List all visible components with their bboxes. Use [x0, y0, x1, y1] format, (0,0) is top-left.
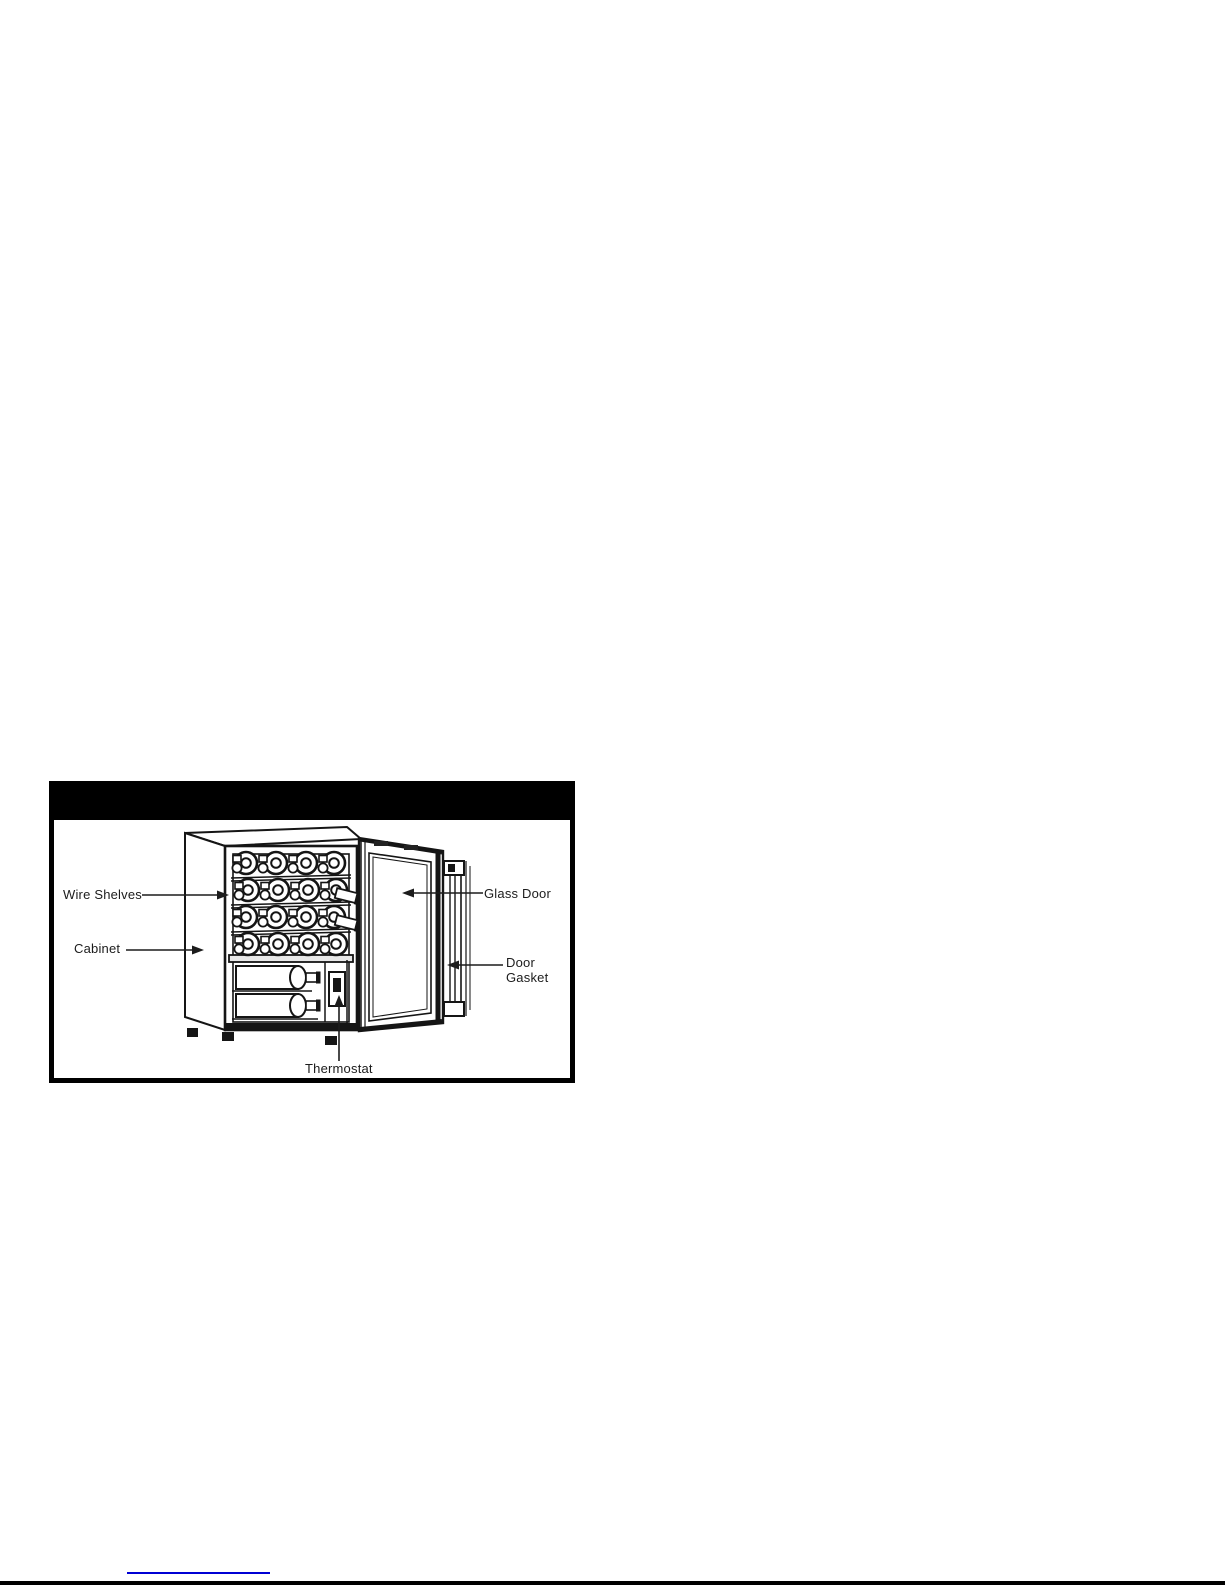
door-gasket-label-line1: Door [506, 955, 548, 970]
cabinet-arrow [126, 946, 204, 955]
thermostat-label: Thermostat [305, 1061, 373, 1076]
cabinet-label: Cabinet [74, 941, 120, 956]
cabinet-foot [187, 1028, 198, 1037]
door-gasket-label-line2: Gasket [506, 970, 548, 985]
glass-door [359, 838, 443, 1031]
cabinet-foot [325, 1036, 337, 1045]
wine-cooler-diagram [54, 820, 570, 1078]
door-gasket-label: Door Gasket [506, 955, 548, 985]
footer-link-underline[interactable] [127, 1572, 270, 1574]
door-gasket [444, 861, 470, 1016]
page-bottom-rule [0, 1581, 1225, 1585]
wire-shelves-label: Wire Shelves [63, 887, 142, 902]
cabinet-foot [222, 1032, 234, 1041]
glass-door-label: Glass Door [484, 886, 551, 901]
figure-header-bar [54, 786, 570, 820]
